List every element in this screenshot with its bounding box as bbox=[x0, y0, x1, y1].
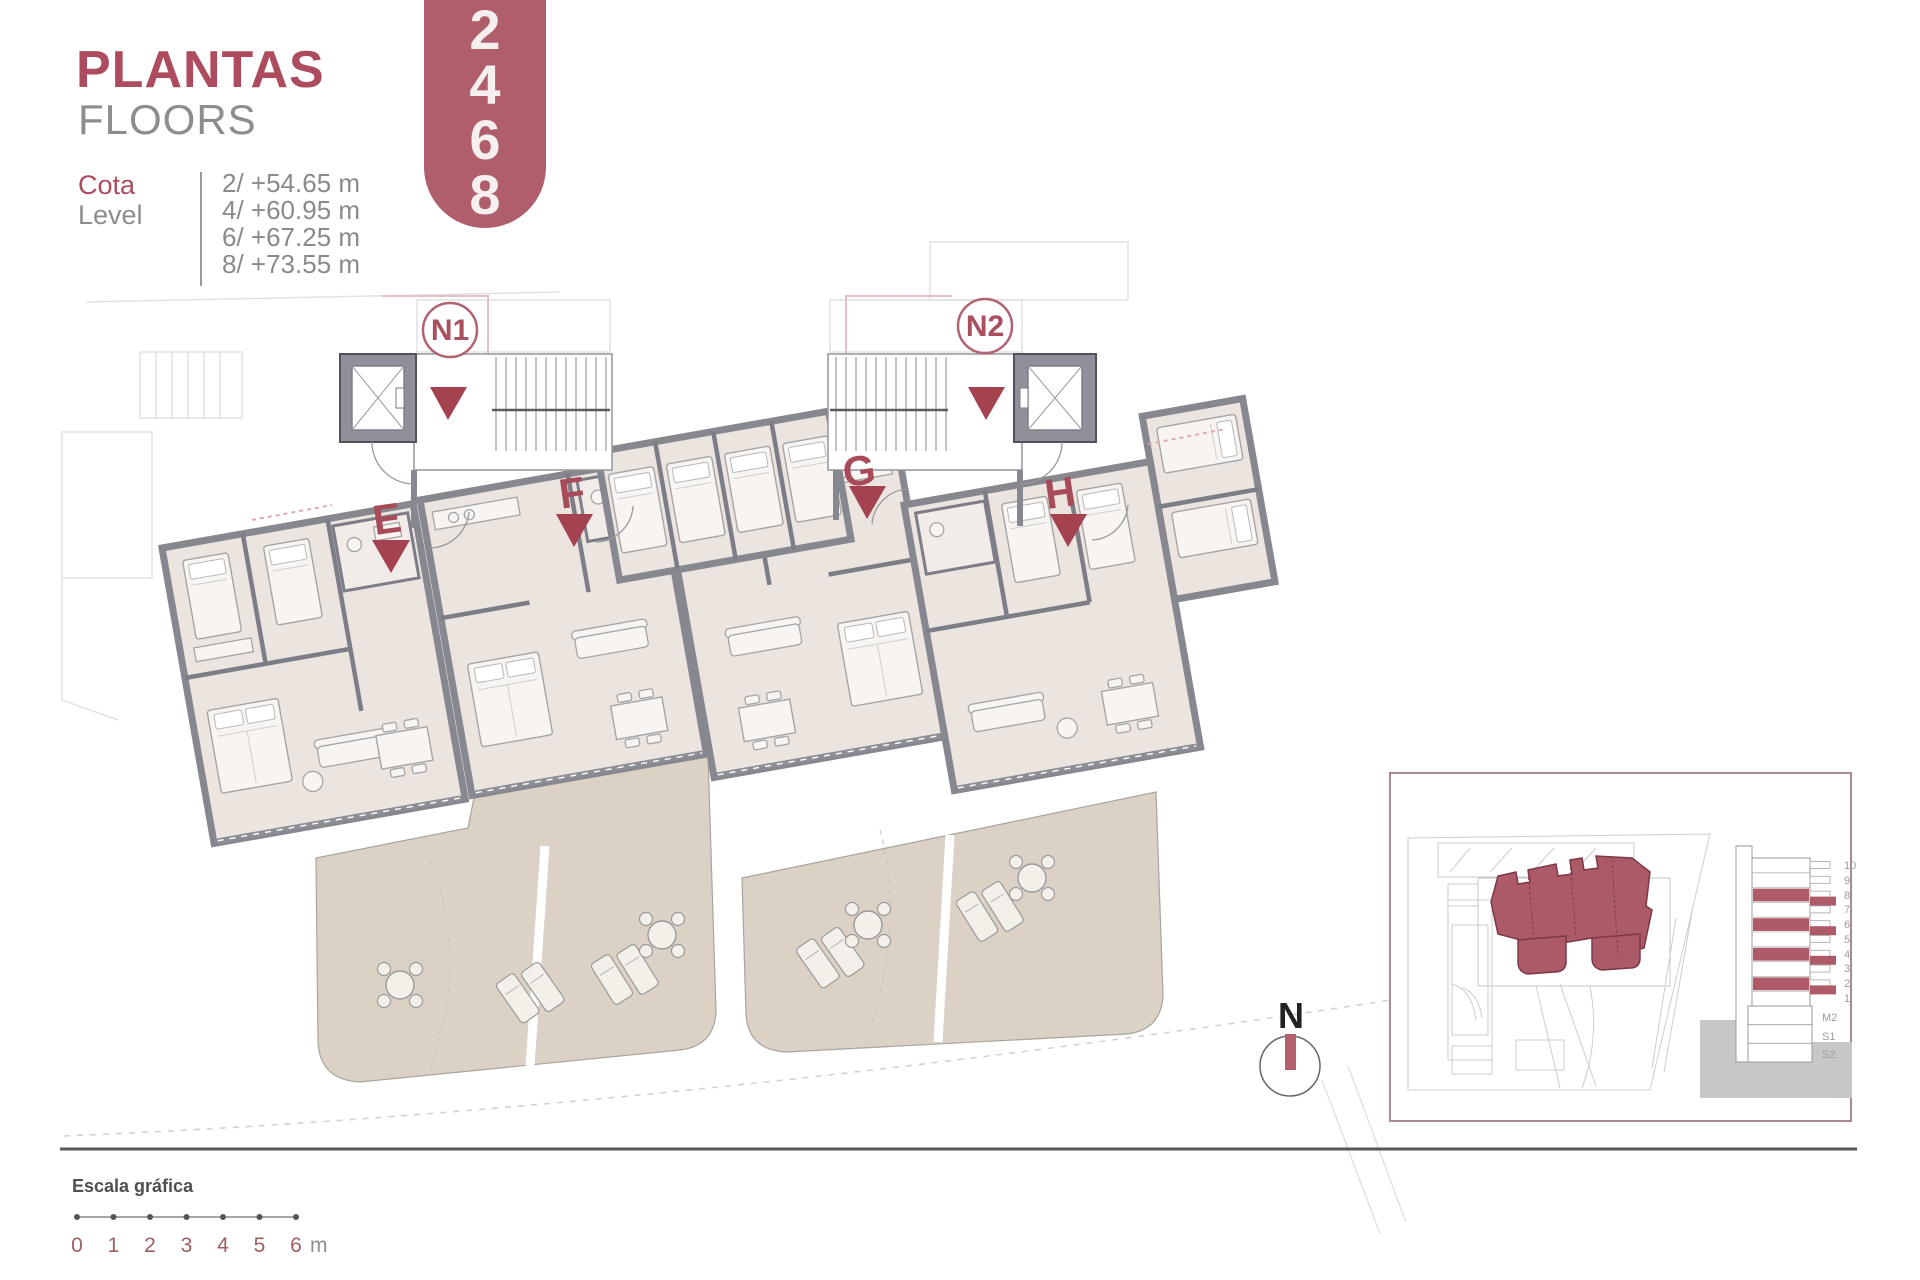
section-floor-label: 1 bbox=[1844, 993, 1850, 1005]
section-floor-label: 2 bbox=[1844, 978, 1850, 990]
elevator-n1 bbox=[340, 354, 416, 442]
section-floor-label: 8 bbox=[1844, 890, 1850, 902]
section-floor-label: 5 bbox=[1844, 934, 1850, 946]
core-label-text: N1 bbox=[431, 314, 469, 347]
unit-e bbox=[162, 504, 465, 844]
section-floor-label: 10 bbox=[1844, 860, 1856, 872]
section-floor-label: 9 bbox=[1844, 875, 1850, 887]
section-floor-label: 4 bbox=[1844, 949, 1850, 961]
section-floor-label: 6 bbox=[1844, 919, 1850, 931]
scale-bar: Escala gráfica 0 1 2 3 4 5 6 m bbox=[71, 1176, 327, 1257]
unit-label-h: H bbox=[1042, 467, 1079, 518]
north-compass: N bbox=[1260, 995, 1320, 1096]
section-floor-label: S1 bbox=[1822, 1031, 1835, 1043]
scale-tick: 1 bbox=[108, 1234, 120, 1257]
section-floor-label: S2 bbox=[1822, 1049, 1835, 1061]
scale-tick: 2 bbox=[144, 1234, 156, 1257]
compass-needle bbox=[1285, 1034, 1296, 1070]
scale-tick: 4 bbox=[217, 1234, 229, 1257]
apartment-units bbox=[162, 399, 1301, 844]
section-highlight-floor-2 bbox=[1753, 977, 1809, 990]
scale-bar-title: Escala gráfica bbox=[72, 1176, 194, 1196]
floor-plan-drawing: N1 N2 E F G H N bbox=[0, 0, 1920, 1280]
elevator-n2 bbox=[1014, 354, 1096, 442]
core-label-text: N2 bbox=[966, 310, 1004, 343]
scale-tick: 0 bbox=[71, 1234, 83, 1257]
north-label: N bbox=[1278, 995, 1304, 1036]
section-floor-label: 3 bbox=[1844, 963, 1850, 975]
section-ground bbox=[1700, 1020, 1738, 1098]
terrace-gh bbox=[742, 792, 1163, 1052]
section-highlight-floor-4 bbox=[1753, 948, 1809, 961]
scale-tick: 3 bbox=[181, 1234, 193, 1257]
scale-tick: 6 bbox=[290, 1234, 302, 1257]
section-floor-label: M2 bbox=[1822, 1012, 1837, 1024]
scale-unit: m bbox=[310, 1234, 328, 1257]
section-highlight-floor-6 bbox=[1753, 918, 1809, 931]
keyplan-inset: 10 9 8 7 6 5 4 3 2 1 M2 S1 S2 bbox=[1390, 773, 1856, 1121]
unit-label-e: E bbox=[370, 493, 404, 543]
scale-bar-ticks: 0 1 2 3 4 5 6 m bbox=[71, 1234, 327, 1257]
section-highlight-floor-8 bbox=[1753, 889, 1809, 902]
section-floor-label: 7 bbox=[1844, 904, 1850, 916]
scale-tick: 5 bbox=[254, 1234, 266, 1257]
